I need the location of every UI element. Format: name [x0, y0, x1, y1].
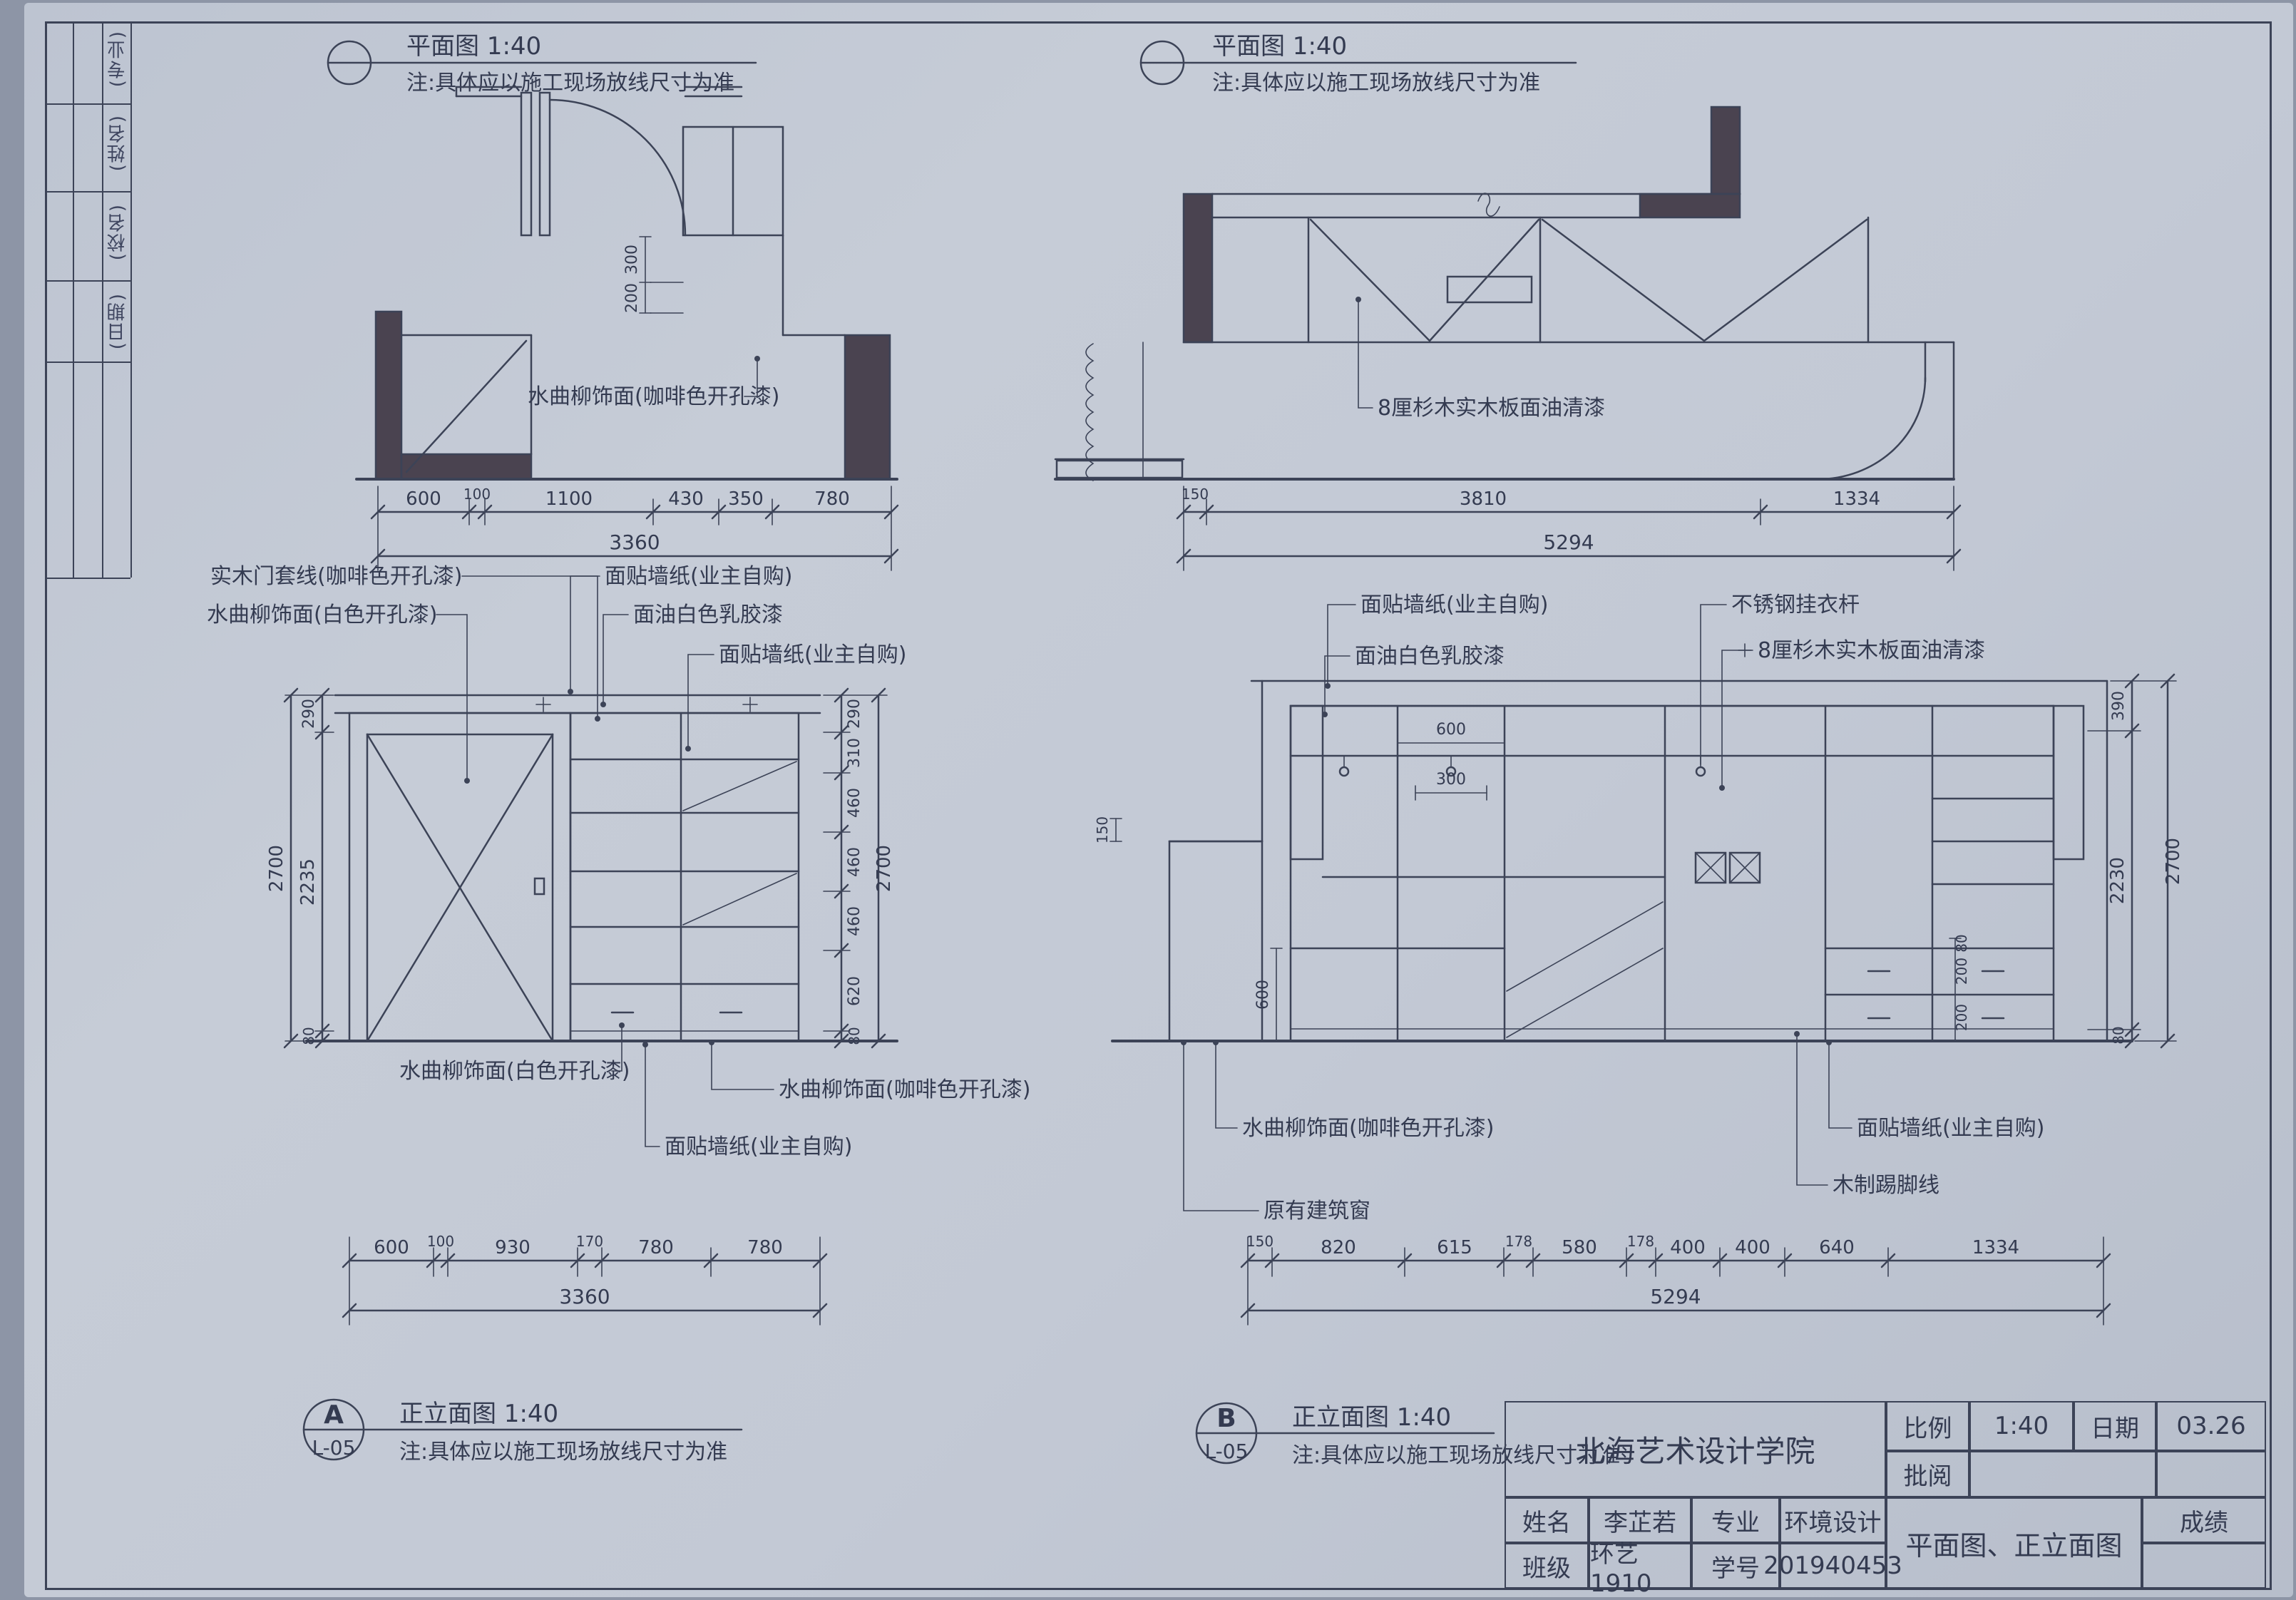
dim-label: 400 [1735, 1237, 1770, 1258]
plan-right-title: 平面图 1:40 [1212, 32, 1347, 61]
closet-diagonal [406, 341, 526, 472]
dim-label: 1334 [1972, 1237, 2019, 1258]
id-value: 201940453 [1780, 1543, 1886, 1589]
dim-label: 310 [846, 738, 863, 768]
dim-label: 100 [427, 1233, 454, 1250]
door-swing-arc [550, 100, 685, 235]
dim-label: 2700 [2163, 838, 2184, 885]
dim-label: 1334 [1833, 488, 1880, 510]
elev-right-dims: 150 820 615 178 580 178 400 400 640 1334… [1241, 1233, 2110, 1325]
label-wallpaper-2: 面贴墙纸(业主自购) [719, 642, 906, 667]
dim-label: 430 [668, 488, 704, 510]
wall-hatch [1057, 461, 1182, 478]
dim-label: 200 [1953, 1004, 1970, 1031]
label-white-paint: 面油白色乳胶漆 [633, 602, 783, 627]
plan-left-dims: 600 100 1100 430 350 780 3360 [371, 486, 898, 570]
label-ash-white: 水曲柳饰面(白色开孔漆) [207, 602, 437, 627]
dim-label: 80 [1953, 934, 1970, 952]
elev-left-title: 正立面图 1:40 [399, 1400, 558, 1428]
dim-label: 290 [846, 699, 863, 729]
elev-left-note: 注:具体应以施工现场放线尺寸为准 [399, 1440, 727, 1465]
label-ash-coffee: 水曲柳饰面(咖啡色开孔漆) [1242, 1116, 1494, 1141]
name-label: 姓名 [1505, 1497, 1589, 1543]
dim-label: 600 [406, 488, 441, 510]
label-skirting: 木制踢脚线 [1833, 1173, 1939, 1198]
dim-label: 780 [638, 1237, 674, 1258]
major-value: 环境设计 [1780, 1497, 1886, 1543]
dim-label: 200 [623, 283, 641, 313]
dim-label: 300 [1436, 771, 1466, 789]
existing-window [1169, 841, 1262, 1041]
door-handle [535, 878, 544, 894]
plan-left: 平面图 1:40 注:具体应以施工现场放线尺寸为准 [328, 32, 898, 570]
wall-stub [1711, 107, 1740, 194]
cabinet [570, 713, 799, 1041]
label-wallpaper: 面贴墙纸(业主自购) [1360, 593, 1548, 617]
wall-top-right [1640, 194, 1740, 217]
label-wallpaper-b: 面贴墙纸(业主自购) [1857, 1116, 2044, 1141]
dim-label: 300 [623, 245, 641, 275]
dim-label: 460 [846, 788, 863, 818]
date-label: 日期 [2074, 1401, 2156, 1451]
dim-label: 780 [747, 1237, 783, 1258]
scale-value: 1:40 [1969, 1401, 2074, 1451]
elev-left-tag: A [324, 1400, 344, 1430]
dim-total: 3360 [559, 1285, 610, 1308]
dim-label: 2700 [873, 845, 895, 892]
dim-label: 80 [300, 1027, 317, 1045]
wall-left [1184, 194, 1212, 342]
class-value: 环艺1910 [1589, 1543, 1691, 1589]
grade-label: 成绩 [2142, 1497, 2266, 1543]
plan-left-title: 平面图 1:40 [406, 32, 541, 61]
label-wallpaper-b: 面贴墙纸(业主自购) [665, 1134, 852, 1159]
review-value [1969, 1451, 2156, 1497]
clothes-rail [1696, 767, 1705, 776]
elev-right-sheet-no: L-05 [1205, 1440, 1249, 1463]
dim-label: 600 [1254, 980, 1272, 1010]
dim-label: 580 [1562, 1237, 1597, 1258]
dim-label: 460 [846, 906, 863, 936]
dim-label: 178 [1505, 1233, 1532, 1250]
dim-label: 150 [1182, 486, 1209, 503]
drawing-sheet-photo: (专业) (姓名) (校名) (日期) 平面图 1:40 注:具体应以施工现场放… [0, 0, 2296, 1600]
dim-label: 170 [576, 1233, 603, 1250]
label-ash-white-b: 水曲柳饰面(白色开孔漆) [399, 1059, 630, 1084]
break-symbol [1478, 193, 1500, 216]
class-label: 班级 [1505, 1543, 1589, 1589]
wall-left [376, 312, 401, 479]
plan-right-board-label: 8厘杉木实木板面油清漆 [1378, 396, 1605, 421]
dim-label: 390 [2110, 691, 2128, 721]
major-label: 专业 [1691, 1497, 1780, 1543]
school-name: 北海艺术设计学院 [1505, 1401, 1886, 1497]
elev-right-title: 正立面图 1:40 [1292, 1403, 1451, 1432]
dim-total: 3360 [609, 530, 660, 554]
dim-label: 600 [374, 1237, 409, 1258]
dim-label: 640 [1819, 1237, 1855, 1258]
grade-value [2142, 1543, 2266, 1589]
dim-label: 2700 [266, 845, 287, 892]
dim-label: 2235 [297, 858, 319, 906]
review-label: 批阅 [1886, 1451, 1969, 1497]
project-title: 平面图、正立面图 [1886, 1497, 2142, 1589]
dim-label: 460 [846, 847, 863, 877]
label-window: 原有建筑窗 [1264, 1199, 1370, 1224]
elev-left-dims: 600 100 930 170 780 780 3360 [343, 1233, 826, 1325]
label-rail: 不锈钢挂衣杆 [1731, 593, 1860, 617]
elevation-left: 实木门套线(咖啡色开孔漆) 水曲柳饰面(白色开孔漆) 面贴墙纸(业主自购) 面油… [207, 564, 1030, 1465]
elev-right-vdims: 390 2230 80 2700 [2088, 675, 2184, 1047]
label-door-trim: 实木门套线(咖啡色开孔漆) [210, 564, 462, 589]
dim-label: 600 [1436, 721, 1466, 739]
elev-left-vdims: 290 2235 80 2700 [266, 689, 334, 1047]
elevation-right: 600 300 80 200 200 600 150 面贴墙纸(业主自购) [1094, 593, 2184, 1468]
dim-total: 5294 [1543, 530, 1594, 554]
label-white-paint: 面油白色乳胶漆 [1355, 644, 1505, 669]
dim-label: 350 [728, 488, 764, 510]
door-leaf-plan [540, 93, 550, 235]
door-swing-arc [1818, 378, 1925, 479]
review-extra [2156, 1451, 2266, 1497]
dim-label: 2230 [2107, 857, 2128, 904]
label-ash-coffee-b: 水曲柳饰面(咖啡色开孔漆) [779, 1077, 1030, 1102]
label-board: 8厘杉木实木板面油清漆 [1758, 638, 1985, 663]
elev-right-inner-dims: 600 300 80 200 200 600 150 [1094, 721, 1970, 1041]
plan-right: 平面图 1:40 注:具体应以施工现场放线尺寸为准 [1055, 32, 1960, 570]
dim-label: 780 [814, 488, 850, 510]
dim-label: 178 [1627, 1233, 1654, 1250]
dim-label: 820 [1321, 1237, 1356, 1258]
side-hatch-right [2054, 706, 2084, 859]
clothes-rail [1340, 767, 1348, 776]
elev-left-sheet-no: L-05 [312, 1436, 356, 1460]
label-wallpaper-1: 面贴墙纸(业主自购) [605, 564, 792, 589]
elev-left-vdims-right: 290 310 460 460 460 620 80 2700 [824, 689, 895, 1047]
plan-right-note: 注:具体应以施工现场放线尺寸为准 [1212, 71, 1540, 96]
dim-label: 1100 [545, 488, 593, 510]
dim-total: 5294 [1650, 1285, 1701, 1308]
dim-label: 290 [300, 699, 318, 729]
dim-label: 620 [846, 976, 863, 1006]
dim-label: 80 [846, 1027, 863, 1045]
wall-bottom-left [401, 454, 531, 479]
linework-layer: 平面图 1:40 注:具体应以施工现场放线尺寸为准 [0, 0, 2296, 1600]
dim-label: 150 [1094, 816, 1111, 843]
dim-label: 150 [1246, 1233, 1273, 1250]
dim-label: 615 [1437, 1237, 1472, 1258]
dim-label: 3810 [1460, 488, 1507, 510]
plan-right-dims: 150 3810 1334 5294 [1177, 486, 1960, 570]
plan-item [1447, 277, 1532, 302]
door-frame [349, 713, 570, 1041]
scale-label: 比例 [1886, 1401, 1969, 1451]
date-value: 03.26 [2156, 1401, 2266, 1451]
dim-label: 100 [463, 486, 491, 503]
plan-left-finish-label: 水曲柳饰面(咖啡色开孔漆) [528, 384, 779, 409]
dim-label: 400 [1670, 1237, 1706, 1258]
dim-label: 80 [2110, 1026, 2127, 1044]
dim-label: 930 [495, 1237, 531, 1258]
elev-right-tag: B [1216, 1404, 1236, 1433]
dim-label: 200 [1953, 958, 1970, 985]
wall-right [845, 335, 890, 479]
door-jamb-left [521, 93, 531, 235]
side-hatch-left [1291, 706, 1323, 859]
